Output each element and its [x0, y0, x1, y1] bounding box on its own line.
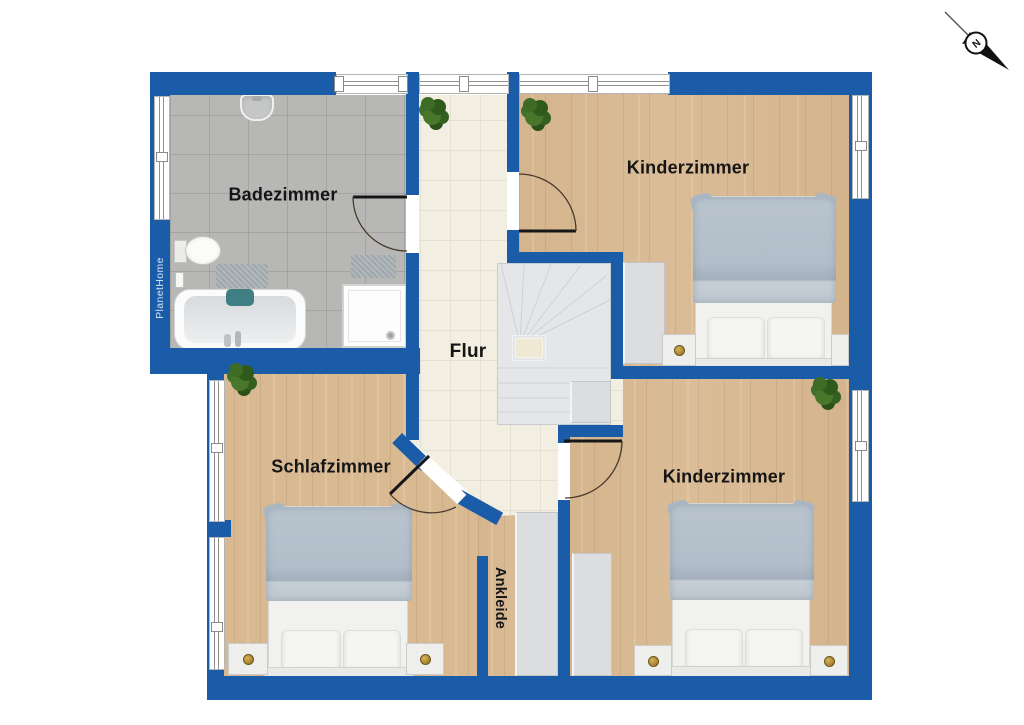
door-symbols [0, 0, 1024, 725]
room-label-schlafzimmer: Schlafzimmer [271, 457, 390, 478]
brand-logo-text: PlanetHome [154, 257, 166, 319]
north-compass-icon: N [935, 2, 1015, 82]
door-swing-arc [565, 441, 622, 498]
door-swing-arc [519, 174, 576, 231]
door-swing-arc [353, 197, 407, 251]
room-label-kinderzimmer-top: Kinderzimmer [627, 158, 749, 179]
door-leaf [390, 456, 429, 494]
brand-logo: PlanetHome [149, 238, 171, 338]
plant-icon [523, 98, 563, 138]
room-label-flur: Flur [450, 341, 487, 363]
plant-icon [229, 363, 269, 403]
floor-plan-canvas: Badezimmer Kinderzimmer Flur Schlafzimme… [0, 0, 1024, 725]
room-label-kinderzimmer-bottom: Kinderzimmer [663, 467, 785, 488]
door-swing-arc [390, 494, 456, 513]
plant-icon [421, 97, 461, 137]
room-label-ankleide: Ankleide [492, 567, 508, 629]
room-label-badezimmer: Badezimmer [228, 185, 337, 206]
plant-icon [813, 377, 853, 417]
